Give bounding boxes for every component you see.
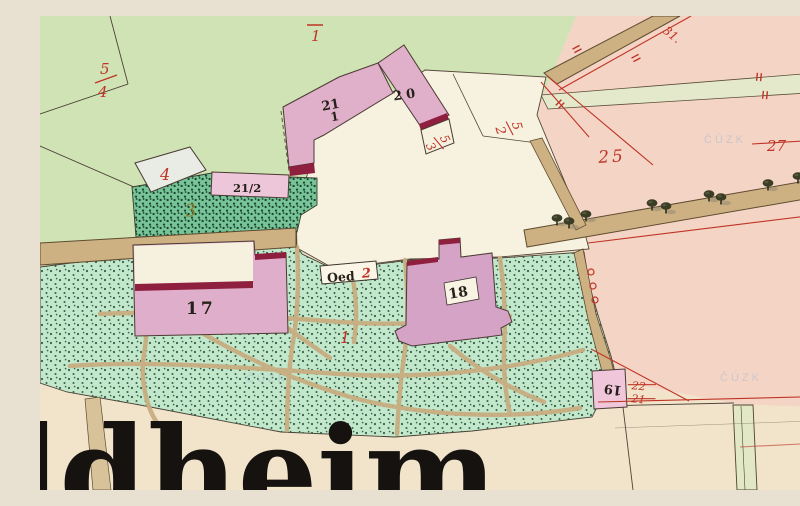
watermark: ČÚZK (720, 371, 762, 384)
label-18: 18 (447, 284, 469, 303)
label-5-4-den: 4 (97, 83, 108, 101)
town-name: ldheim (40, 400, 497, 490)
road-south (733, 405, 757, 490)
label-5-4-num: 5 (100, 60, 110, 78)
label-1-overline: 1 (311, 27, 321, 45)
label-garden-1: 1 (340, 328, 350, 347)
svg-text:21: 21 (630, 392, 646, 406)
cadastral-map: 5 4 1 4 25 27 31. 5 2 5 3 1 22 21 (40, 16, 800, 490)
watermark: ČÚZK (704, 133, 746, 146)
svg-text:19: 19 (603, 380, 623, 397)
building-17-yard (134, 242, 253, 285)
label-field-25: 25 (597, 146, 627, 167)
label-building-4: 4 (159, 165, 170, 184)
svg-text:Oed: Oed (327, 268, 356, 285)
map-canvas: 5 4 1 4 25 27 31. 5 2 5 3 1 22 21 (40, 16, 800, 490)
label-21-2: 21/2 (233, 181, 261, 195)
label-17: 17 (186, 299, 216, 319)
label-oed-2: 2 (360, 266, 371, 282)
label-field-27: 27 (766, 137, 787, 155)
label-19: 19 (603, 380, 623, 397)
watermark: ČÚZK (246, 372, 288, 385)
